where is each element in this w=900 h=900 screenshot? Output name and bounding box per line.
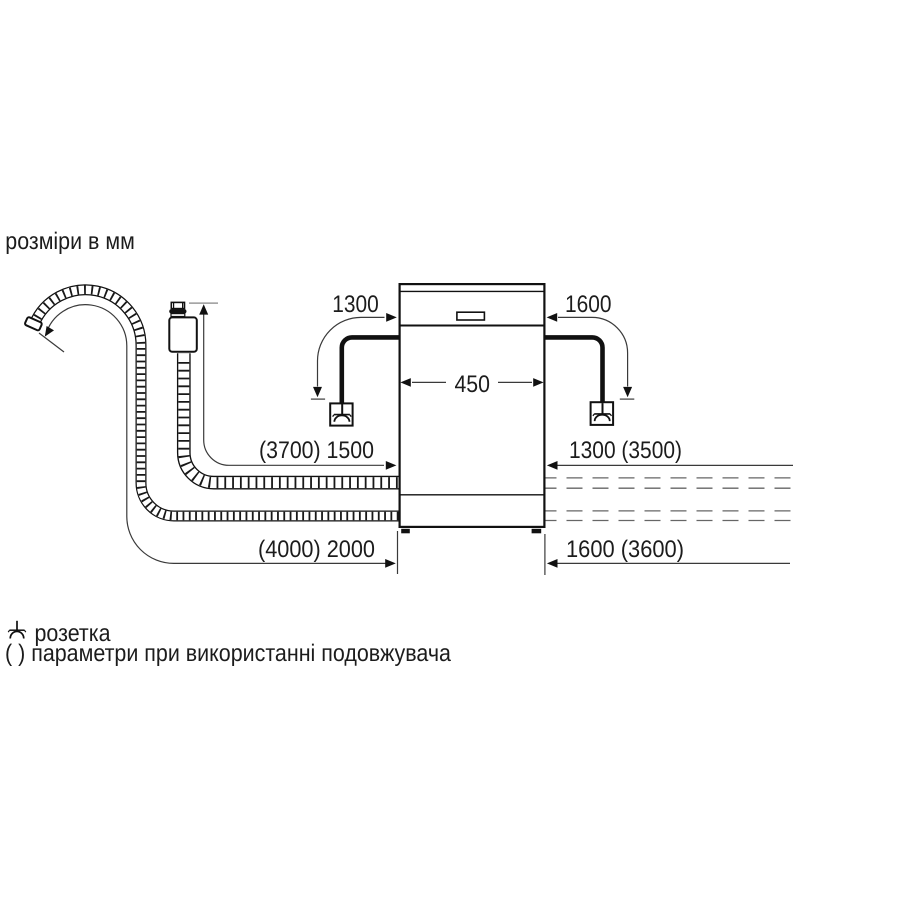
svg-text:1600 (3600): 1600 (3600) xyxy=(566,536,684,563)
svg-text:розміри в мм: розміри в мм xyxy=(5,228,135,255)
svg-text:( ) параметри при використанн: ( ) параметри при використанні подовжува… xyxy=(5,640,452,667)
svg-text:1300: 1300 xyxy=(332,291,379,318)
svg-text:(3700) 1500: (3700) 1500 xyxy=(259,437,374,464)
svg-text:1300 (3500): 1300 (3500) xyxy=(569,437,682,464)
svg-text:(4000) 2000: (4000) 2000 xyxy=(258,536,375,563)
svg-text:1600: 1600 xyxy=(565,291,612,318)
svg-text:450: 450 xyxy=(454,371,490,398)
